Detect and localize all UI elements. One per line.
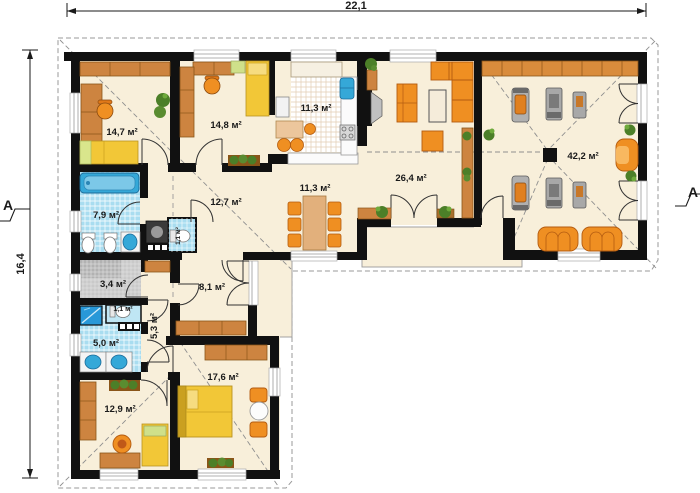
svg-text:12,7 м²: 12,7 м² xyxy=(210,197,241,208)
svg-text:16,4: 16,4 xyxy=(15,252,27,274)
svg-text:11,3 м²: 11,3 м² xyxy=(300,183,331,194)
svg-text:5,3 м²: 5,3 м² xyxy=(149,313,160,339)
svg-text:17,6 м²: 17,6 м² xyxy=(207,372,238,383)
svg-text:5,0 м²: 5,0 м² xyxy=(93,338,119,349)
svg-text:26,4 м²: 26,4 м² xyxy=(395,173,426,184)
svg-text:1,1 м²: 1,1 м² xyxy=(175,226,182,245)
svg-text:14,7 м²: 14,7 м² xyxy=(106,127,137,138)
svg-text:42,2 м²: 42,2 м² xyxy=(567,151,598,162)
svg-text:22,1: 22,1 xyxy=(345,0,366,12)
svg-text:8,1 м²: 8,1 м² xyxy=(199,282,225,293)
svg-text:12,9 м²: 12,9 м² xyxy=(104,404,135,415)
svg-text:1,1 м²: 1,1 м² xyxy=(113,306,133,313)
svg-text:3,4 м²: 3,4 м² xyxy=(100,279,126,290)
svg-text:7,9 м²: 7,9 м² xyxy=(93,210,119,221)
svg-text:14,8 м²: 14,8 м² xyxy=(210,120,241,131)
svg-text:11,3 м²: 11,3 м² xyxy=(301,103,332,114)
svg-text:A: A xyxy=(3,197,13,213)
